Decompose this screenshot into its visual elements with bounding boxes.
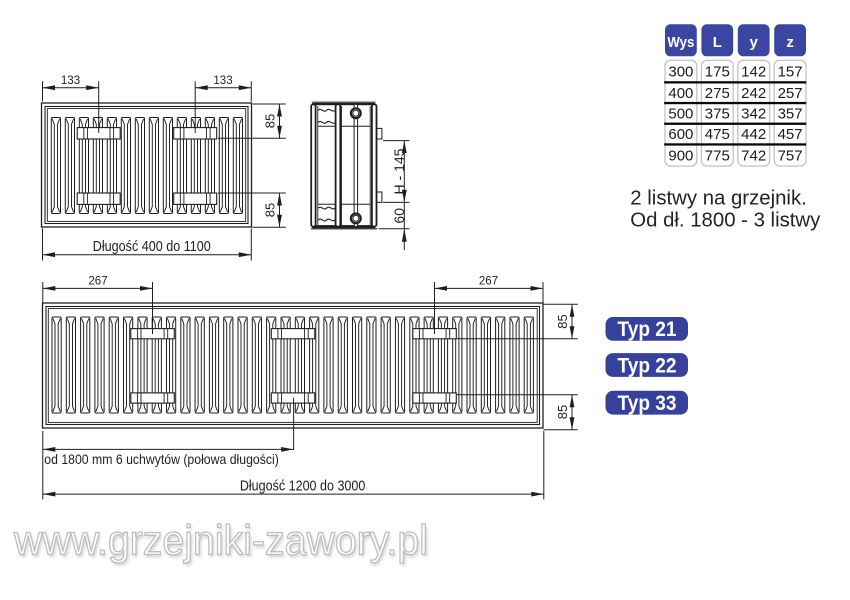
svg-text:y: y — [750, 34, 759, 51]
svg-text:300: 300 — [668, 64, 693, 81]
svg-text:133: 133 — [213, 75, 232, 87]
svg-text:133: 133 — [61, 75, 80, 87]
svg-text:157: 157 — [778, 64, 803, 81]
svg-text:z: z — [786, 34, 794, 51]
svg-text:85: 85 — [263, 114, 278, 128]
svg-text:775: 775 — [705, 148, 730, 165]
svg-text:257: 257 — [778, 85, 803, 102]
svg-text:900: 900 — [668, 148, 693, 165]
svg-text:400: 400 — [668, 85, 693, 102]
svg-text:175: 175 — [705, 64, 730, 81]
svg-text:600: 600 — [668, 126, 693, 143]
svg-text:Długość 1200 do 3000: Długość 1200 do 3000 — [240, 478, 366, 495]
svg-text:267: 267 — [479, 276, 498, 288]
svg-text:142: 142 — [741, 64, 766, 81]
svg-text:475: 475 — [705, 126, 730, 143]
svg-text:85: 85 — [263, 203, 278, 217]
svg-text:742: 742 — [741, 148, 766, 165]
svg-text:85: 85 — [555, 405, 570, 419]
svg-text:757: 757 — [778, 148, 803, 165]
svg-text:Długość 400 do 1100: Długość 400 do 1100 — [93, 238, 211, 255]
svg-text:442: 442 — [741, 126, 766, 143]
svg-text:457: 457 — [778, 126, 803, 143]
svg-text:60: 60 — [391, 208, 407, 224]
svg-text:267: 267 — [88, 276, 107, 288]
svg-text:H - 145: H - 145 — [391, 148, 407, 194]
svg-text:Typ 33: Typ 33 — [618, 391, 677, 415]
svg-text:Od dł. 1800 - 3 listwy: Od dł. 1800 - 3 listwy — [630, 210, 820, 232]
svg-text:500: 500 — [668, 106, 693, 123]
svg-text:www.grzejniki-zawory.pl: www.grzejniki-zawory.pl — [13, 517, 428, 564]
svg-text:Typ 21: Typ 21 — [618, 317, 677, 341]
svg-text:85: 85 — [555, 314, 570, 328]
svg-text:275: 275 — [705, 85, 730, 102]
svg-text:Wys: Wys — [667, 34, 694, 51]
svg-text:357: 357 — [778, 106, 803, 123]
svg-text:375: 375 — [705, 106, 730, 123]
svg-text:342: 342 — [741, 106, 766, 123]
svg-text:od 1800 mm 6 uchwytów (połowa: od 1800 mm 6 uchwytów (połowa długości) — [44, 451, 278, 467]
svg-text:2 listwy na grzejnik.: 2 listwy na grzejnik. — [630, 187, 807, 209]
svg-text:242: 242 — [741, 85, 766, 102]
svg-text:Typ 22: Typ 22 — [618, 353, 677, 377]
svg-text:L: L — [713, 34, 722, 51]
